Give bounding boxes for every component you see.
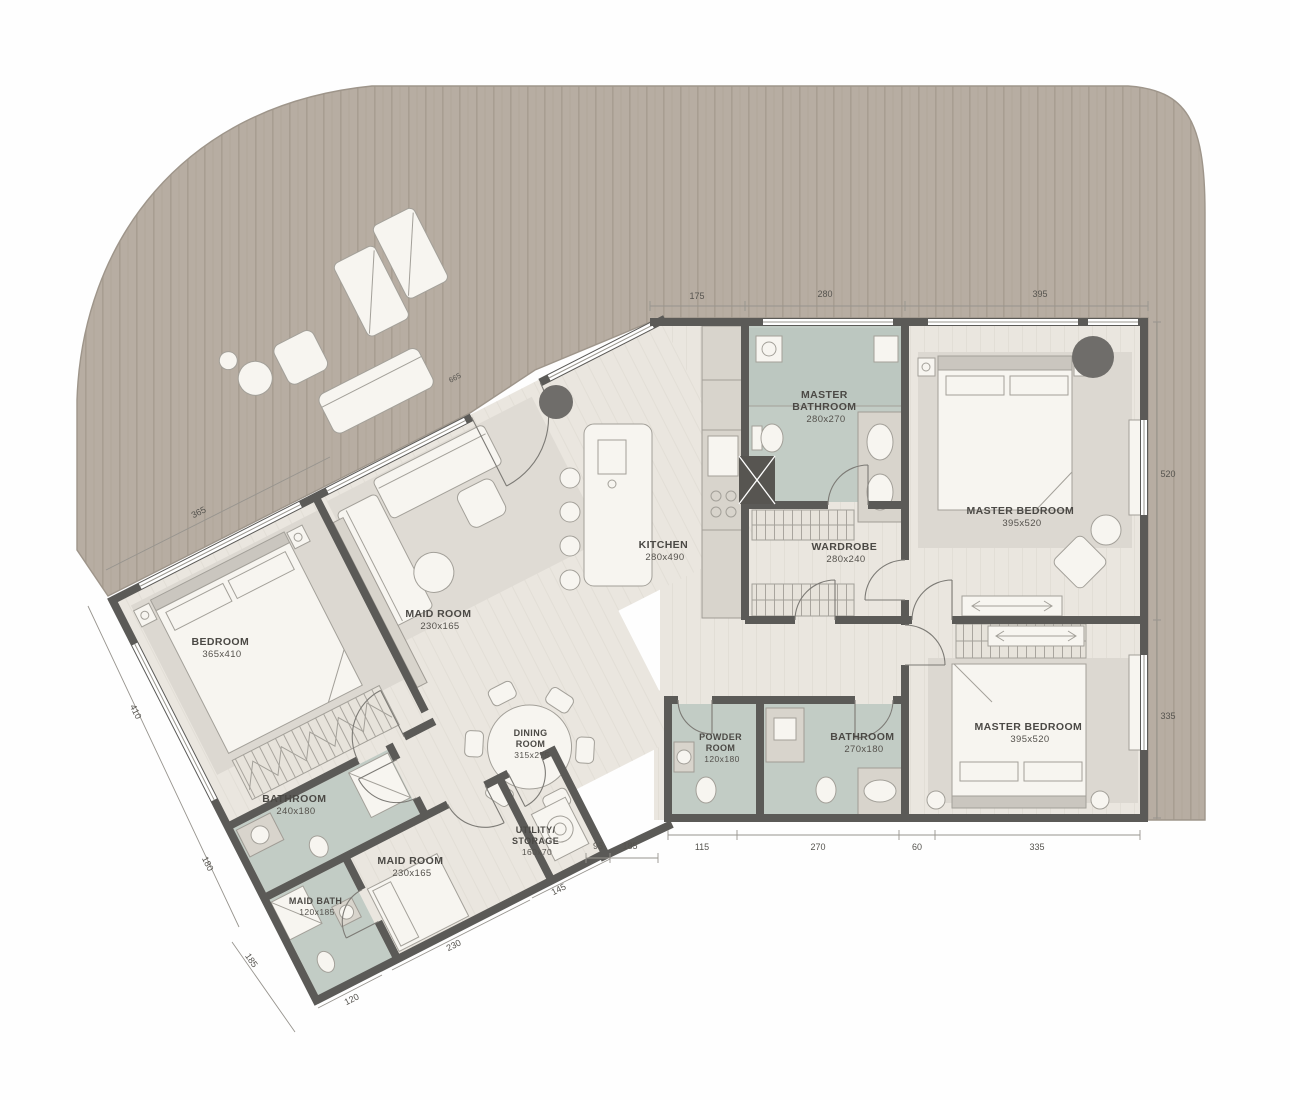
toilet-icon (761, 424, 783, 452)
bar-stool-icon (560, 468, 580, 488)
floor-plan-page: MASTER BATHROOM 280x270 MASTER BEDROOM 3… (0, 0, 1290, 1100)
dim-bottom-335: 335 (1029, 842, 1044, 852)
dim-inner-95: 95 (593, 841, 603, 851)
dim-inner-185: 185 (622, 841, 637, 851)
shaft-icon (739, 456, 775, 504)
bar-stool-icon (560, 570, 580, 590)
dim-bottom-270: 270 (810, 842, 825, 852)
toilet-icon (696, 777, 716, 803)
dim-bottomleft-230: 230 (445, 937, 463, 953)
dim-right-520: 520 (1160, 469, 1175, 479)
dim-left-185: 185 (243, 951, 260, 969)
structural-column (1072, 336, 1114, 378)
dim-bottom-60: 60 (912, 842, 922, 852)
room-label-dining-room: DINING ROOM 315x275 (514, 728, 551, 760)
dim-bottom-115: 115 (695, 842, 709, 852)
bar-stool-icon (560, 536, 580, 556)
dim-left-180: 180 (200, 855, 216, 873)
dim-top-280: 280 (817, 289, 832, 299)
dim-top-395: 395 (1032, 289, 1047, 299)
bar-stool-icon (560, 502, 580, 522)
dim-top-175: 175 (689, 291, 704, 301)
structural-column (539, 385, 573, 419)
room-label-powder-room: POWDER ROOM 120x180 (699, 732, 745, 764)
floor-plan-svg: MASTER BATHROOM 280x270 MASTER BEDROOM 3… (0, 0, 1290, 1100)
toilet-icon (816, 777, 836, 803)
dim-right-335: 335 (1160, 711, 1175, 721)
